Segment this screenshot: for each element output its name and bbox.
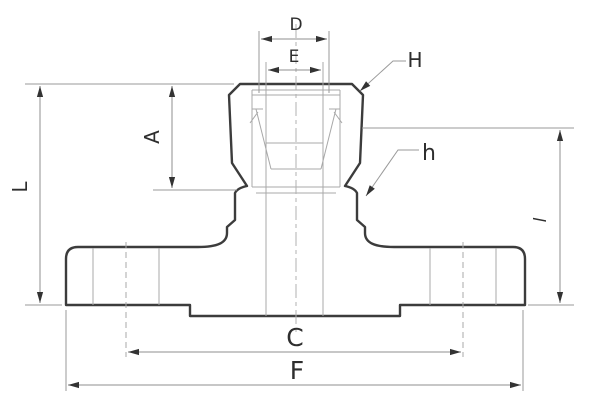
bolt-hole-left <box>93 242 159 357</box>
ferrule-barb-right <box>334 112 342 123</box>
dimension-label-D: D <box>289 15 302 35</box>
leader-line-h <box>366 150 419 196</box>
bolt-hole-right <box>430 242 496 357</box>
ferrule-cone-left <box>256 109 271 169</box>
leader-line-H <box>360 61 406 91</box>
dimension-E: E <box>268 47 321 70</box>
fitting-drawing: D E A L l C F H <box>0 0 600 406</box>
dimension-l: l <box>362 128 574 305</box>
dimension-A: A <box>25 84 237 190</box>
dimension-L: L <box>8 86 62 305</box>
dimension-label-C: C <box>286 323 303 352</box>
dimension-label-F: F <box>290 356 304 385</box>
callout-h: h <box>366 141 436 196</box>
dimension-label-L: L <box>8 181 32 193</box>
dimension-C: C <box>128 323 461 352</box>
callout-label-h: h <box>422 141 436 166</box>
dimension-label-E: E <box>289 47 300 67</box>
dimension-label-l: l <box>531 217 551 222</box>
ferrule-barb-left <box>250 112 258 123</box>
callout-H: H <box>360 48 423 91</box>
drawing-canvas: D E A L l C F H <box>0 0 600 406</box>
dimension-label-A: A <box>140 130 164 144</box>
callout-label-H: H <box>407 48 422 72</box>
